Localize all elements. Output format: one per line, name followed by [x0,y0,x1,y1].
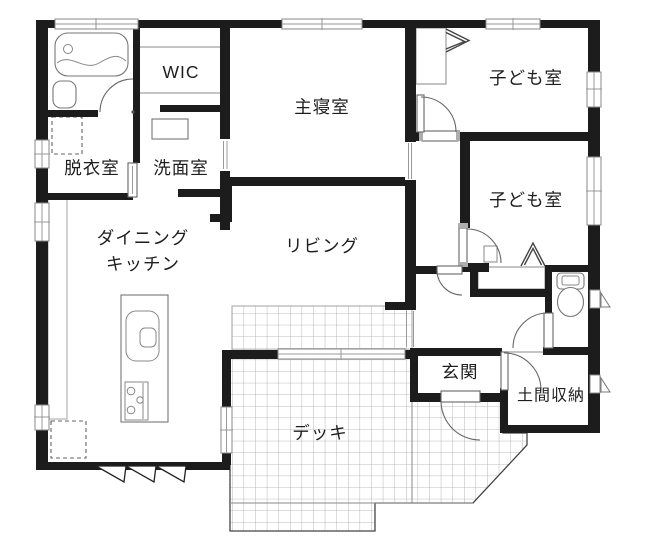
dining-window [34,203,50,241]
room-label-washroom: 洗面室 [153,158,209,178]
floor-plan: WIC 主寝室 子ども室 子ども室 脱衣室 洗面室 ダイニング キッチン リビン… [0,0,646,550]
refrigerator-space [51,421,86,458]
kitchen-wall-counter [48,198,67,419]
room-label-master-bedroom: 主寝室 [294,97,350,117]
master-hall-slider [405,142,416,180]
room-label-kitchen: キッチン [106,254,180,274]
room-label-kids-room-1: 子ども室 [489,68,563,88]
room-label-doma-storage: 土間収納 [517,387,585,405]
doma-entrance-door [501,352,541,390]
floor-plan-svg: WIC 主寝室 子ども室 子ども室 脱衣室 洗面室 ダイニング キッチン リビン… [0,0,646,550]
shower-counter [53,81,76,108]
kids1-side-window [586,72,602,107]
living-sliding-window [278,348,405,360]
deck-floor [230,358,527,531]
doma-vent [590,375,610,393]
bathroom-door [100,79,135,114]
exterior-step-marks [96,466,186,482]
room-label-dressing-room: 脱衣室 [64,158,120,178]
kids1-closet [416,28,446,84]
entrance-step [441,391,480,402]
master-window [282,18,362,30]
kids2-closet-bifold [521,243,545,266]
toilet-door [513,313,553,348]
deck-side-door [220,407,233,453]
room-label-wic: WIC [162,62,199,82]
kids1-top-window [486,18,540,30]
room-label-deck: デッキ [292,423,348,443]
bathtub [55,33,128,76]
tile-strip-floor [232,306,412,350]
vanity-counter [152,119,188,139]
room-label-kids-room-2: 子ども室 [489,190,563,210]
master-washroom-slider [220,139,230,171]
kids2-side-window [586,157,602,225]
hall-corridor-door [437,266,462,295]
kitchen-window [34,405,50,430]
kids1-closet-bifold [446,29,469,52]
kids1-door [417,95,460,141]
dressing-window [34,140,50,168]
room-label-entrance: 玄関 [442,362,479,382]
kids2-door [458,223,501,267]
bathroom-window [55,18,138,30]
room-label-dining: ダイニング [97,228,190,248]
dressing-washroom-slider [128,163,137,197]
room-label-living: リビング [285,236,359,256]
toilet-vent [590,290,610,308]
kitchen-island [121,295,168,422]
washer-space [52,117,82,154]
toilet-fixture [557,273,584,317]
